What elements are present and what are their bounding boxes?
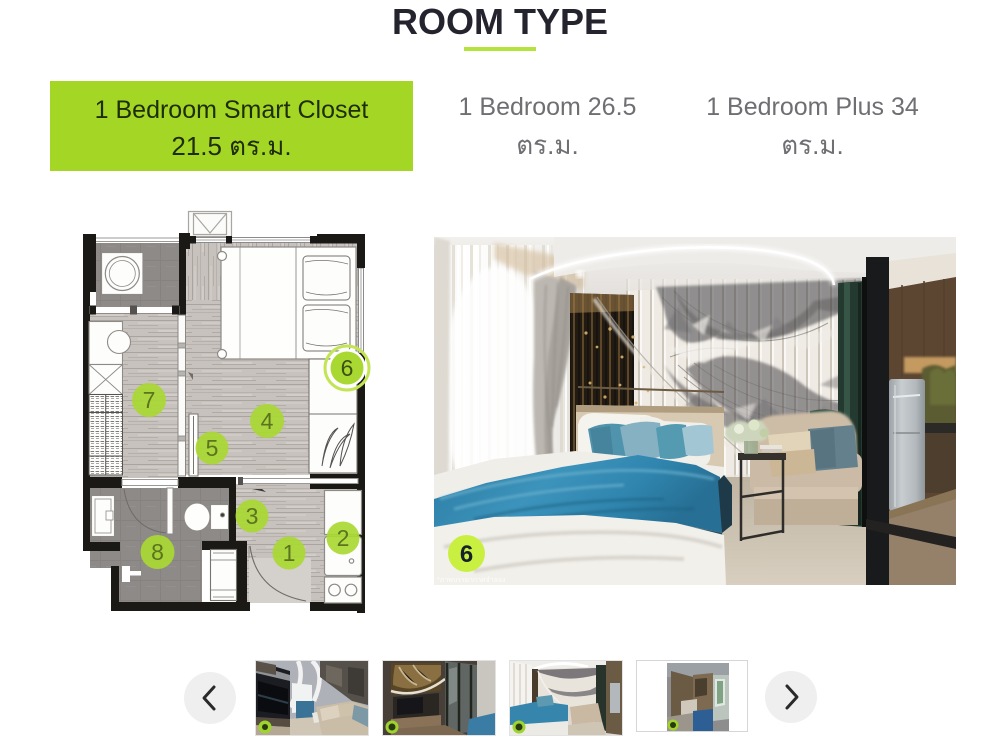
svg-text:*ภาพบรรยากาศจำลอง: *ภาพบรรยากาศจำลอง <box>437 576 505 584</box>
svg-text:5: 5 <box>206 435 219 461</box>
svg-text:8: 8 <box>151 539 164 565</box>
svg-text:4: 4 <box>261 408 274 434</box>
svg-text:3: 3 <box>246 503 259 529</box>
svg-text:6: 6 <box>460 541 473 568</box>
svg-text:6: 6 <box>341 355 354 381</box>
svg-text:1: 1 <box>283 540 296 566</box>
svg-text:7: 7 <box>143 387 156 413</box>
svg-text:2: 2 <box>337 525 350 551</box>
